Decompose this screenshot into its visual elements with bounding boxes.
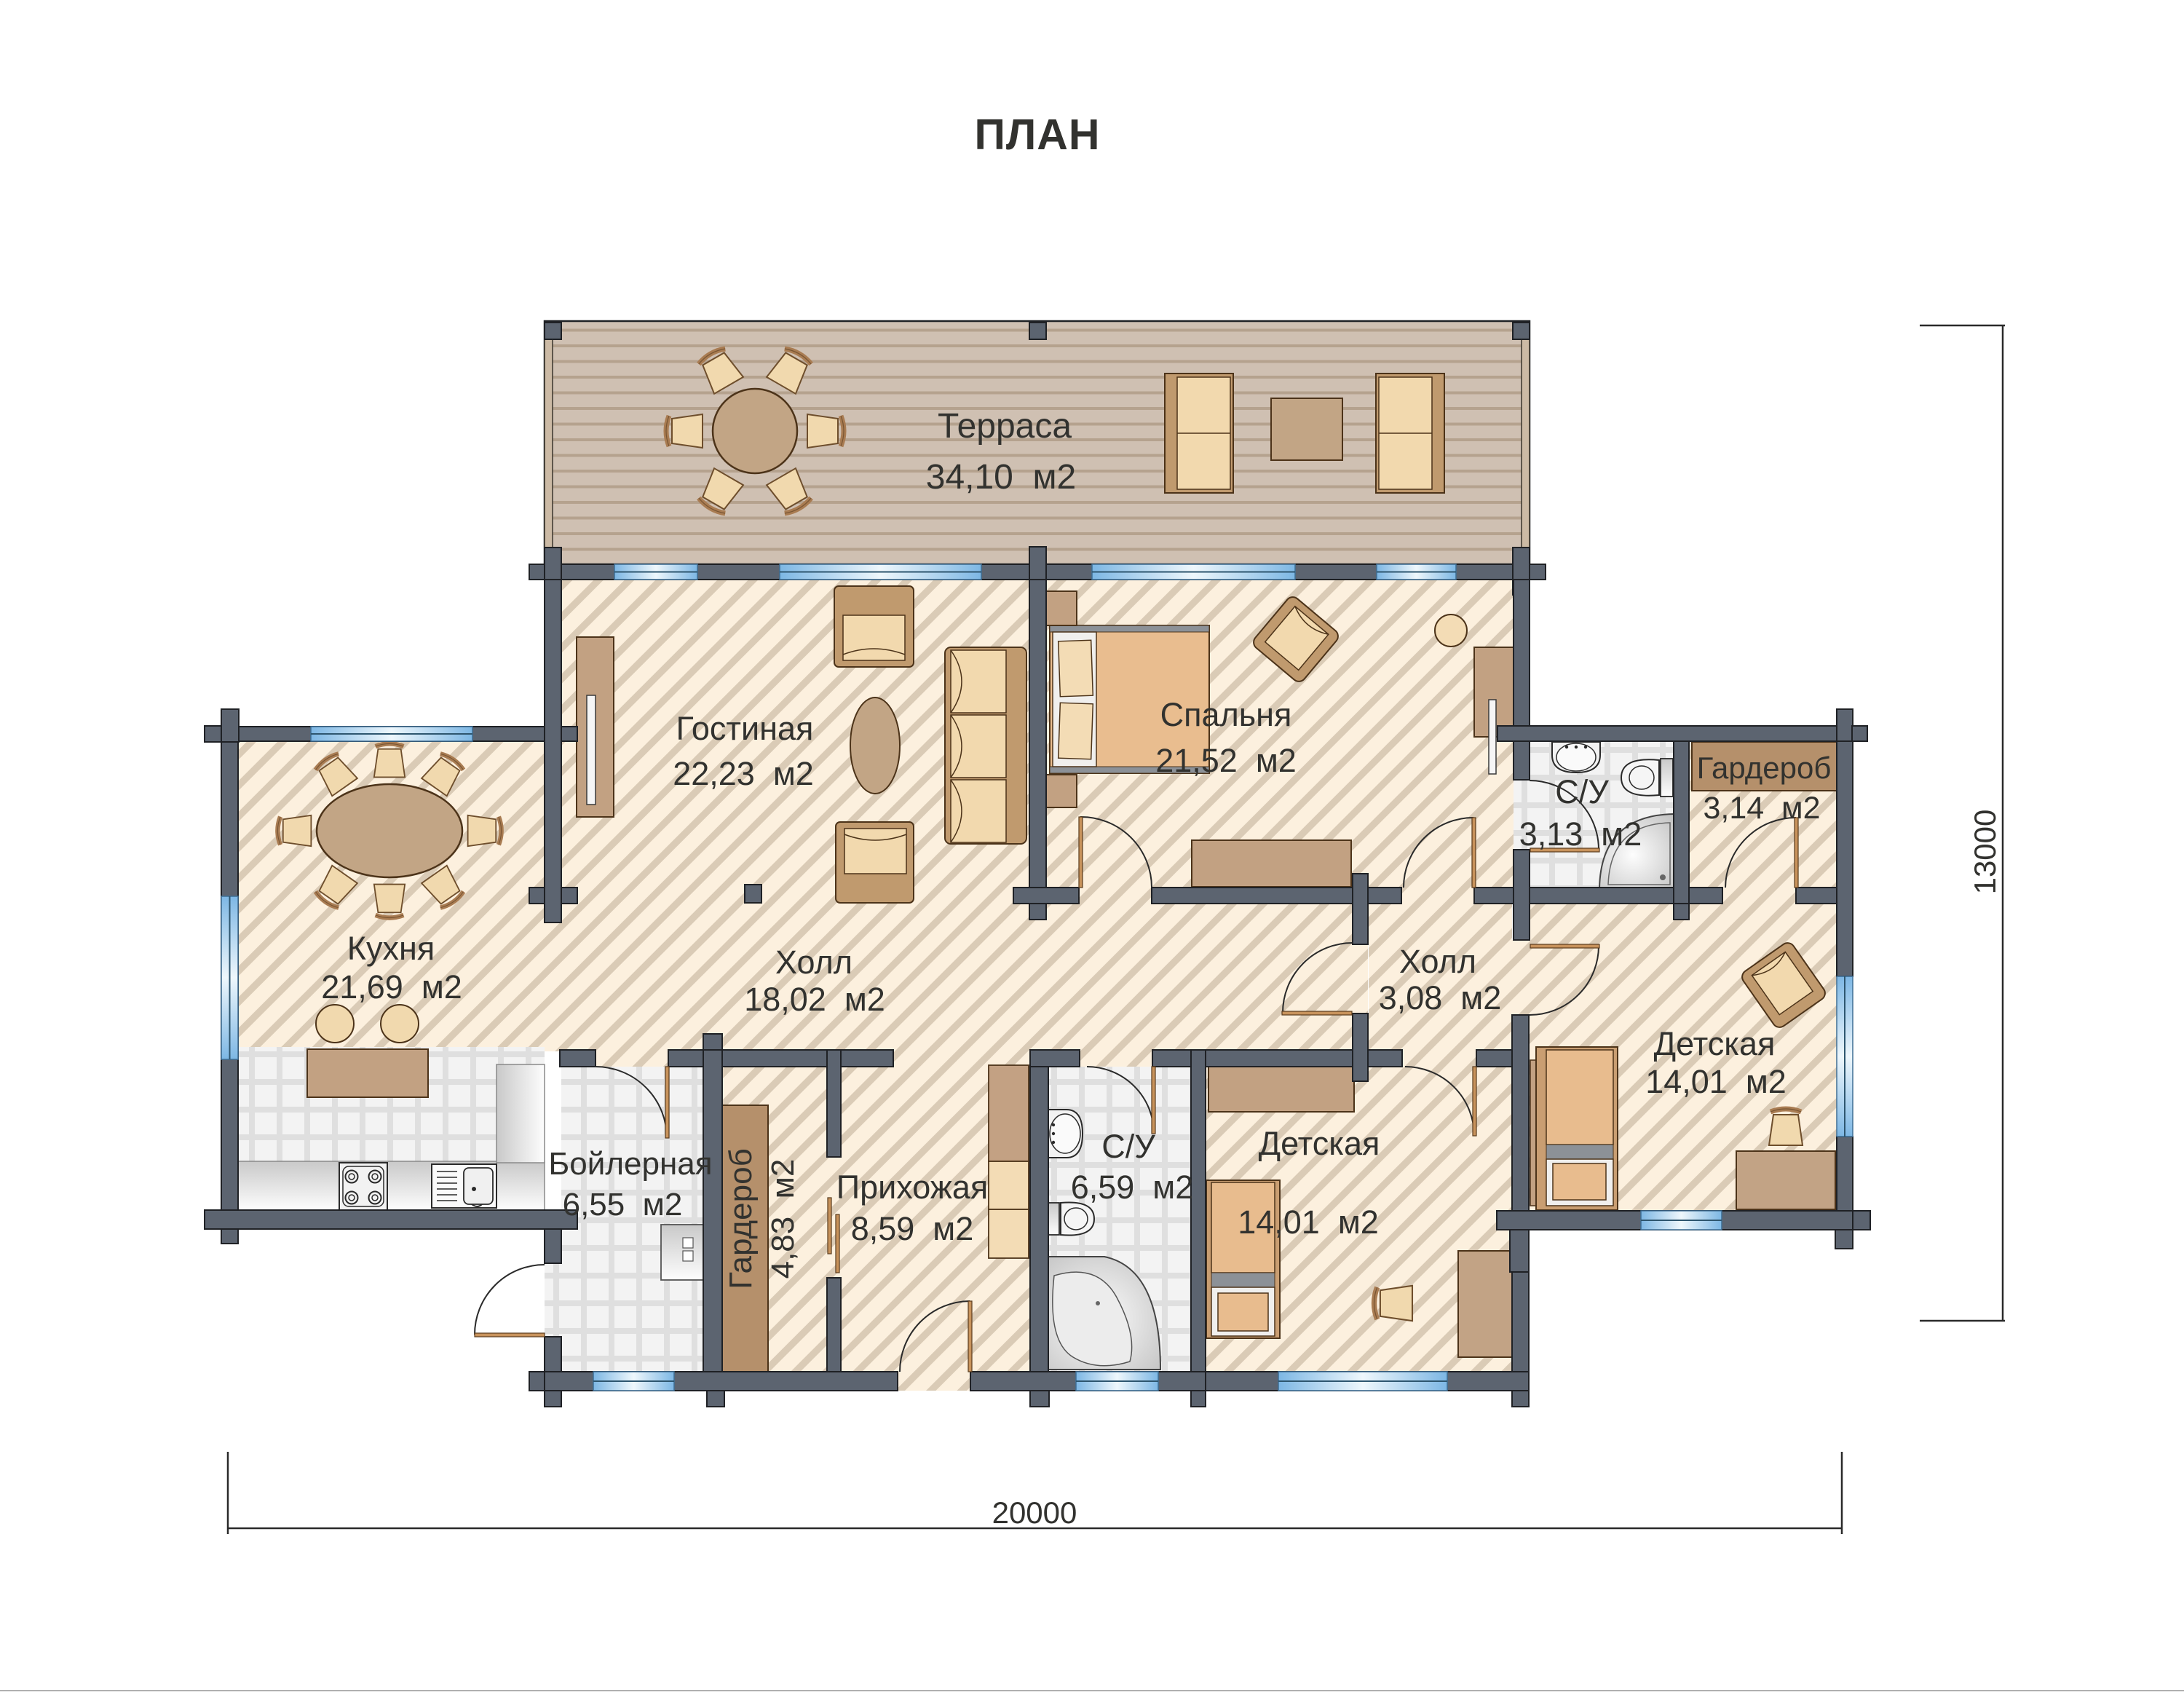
svg-text:3,08 м2: 3,08 м2 <box>1379 979 1502 1016</box>
svg-text:Гардероб: Гардероб <box>1697 751 1832 785</box>
svg-text:22,23 м2: 22,23 м2 <box>673 755 814 792</box>
svg-text:8,59 м2: 8,59 м2 <box>851 1210 974 1247</box>
svg-text:18,02 м2: 18,02 м2 <box>744 981 885 1018</box>
svg-text:Терраса: Терраса <box>938 407 1072 446</box>
svg-text:6,55 м2: 6,55 м2 <box>563 1187 683 1222</box>
svg-text:3,14 м2: 3,14 м2 <box>1703 791 1820 826</box>
svg-text:20000: 20000 <box>992 1495 1077 1530</box>
svg-text:Гостиная: Гостиная <box>676 710 814 747</box>
svg-text:14,01 м2: 14,01 м2 <box>1645 1063 1787 1100</box>
svg-text:21,69 м2: 21,69 м2 <box>321 968 462 1005</box>
svg-text:6,59 м2: 6,59 м2 <box>1071 1169 1194 1206</box>
svg-text:С/У: С/У <box>1101 1128 1155 1165</box>
svg-text:Прихожая: Прихожая <box>836 1169 989 1206</box>
svg-text:13000: 13000 <box>1968 810 2002 895</box>
svg-text:С/У: С/У <box>1555 773 1609 810</box>
svg-text:34,10 м2: 34,10 м2 <box>926 458 1076 497</box>
svg-text:Детская: Детская <box>1259 1125 1380 1162</box>
svg-text:Детская: Детская <box>1654 1025 1776 1062</box>
svg-text:Гардероб: Гардероб <box>723 1148 759 1289</box>
svg-text:Бойлерная: Бойлерная <box>548 1146 712 1182</box>
svg-text:14,01 м2: 14,01 м2 <box>1238 1204 1379 1241</box>
svg-text:ПЛАН: ПЛАН <box>974 111 1100 159</box>
svg-text:4,83 м2: 4,83 м2 <box>765 1159 801 1279</box>
svg-text:Холл: Холл <box>775 944 852 981</box>
svg-text:21,52 м2: 21,52 м2 <box>1155 742 1297 779</box>
svg-text:Спальня: Спальня <box>1160 696 1292 733</box>
svg-text:Кухня: Кухня <box>347 930 435 967</box>
svg-text:3,13 м2: 3,13 м2 <box>1519 815 1642 853</box>
svg-text:Холл: Холл <box>1399 943 1476 980</box>
